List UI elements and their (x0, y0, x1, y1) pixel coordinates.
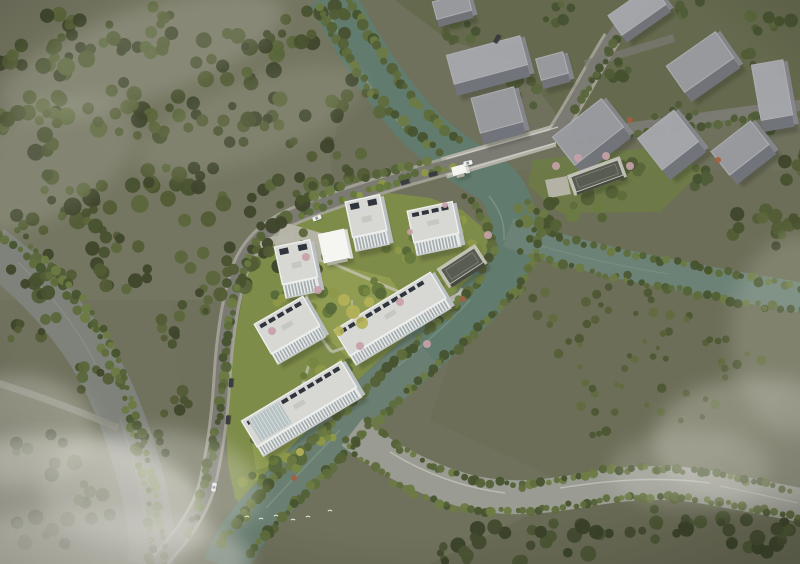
aerial-rendering (0, 0, 800, 564)
rendering-canvas (0, 0, 800, 564)
vignette-overlay (0, 0, 800, 564)
